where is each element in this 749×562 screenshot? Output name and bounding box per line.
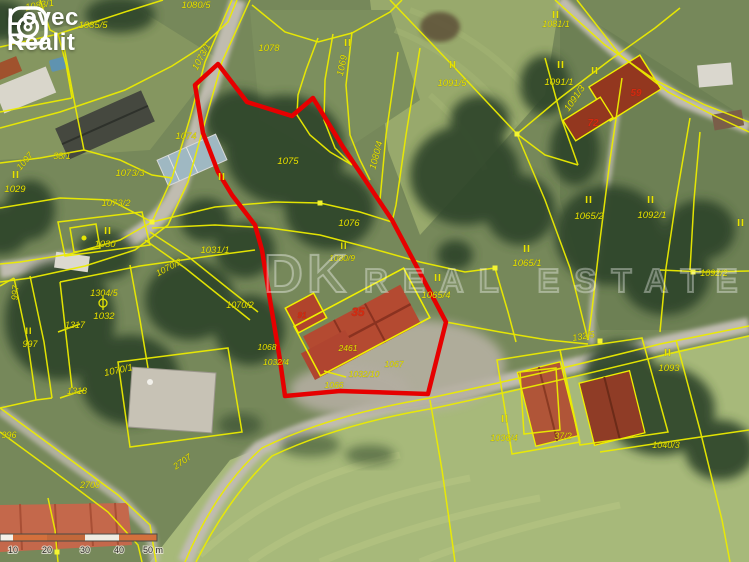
parcel-number-label: 997 [9, 284, 20, 301]
parcel-number-label: 1092/1 [637, 210, 666, 221]
parcel-number-label: 1065/1 [512, 258, 541, 269]
parcel-number-label: 1067 [385, 359, 404, 369]
parcel-number-label: 1068 [258, 342, 277, 352]
parcel-number-label: 1070/2 [226, 300, 254, 310]
parcel-number-label: 1066 [325, 380, 344, 390]
house-number-label: 91 [298, 311, 307, 320]
house-number-label: 35 [351, 305, 365, 319]
landuse-symbol-label: II [218, 171, 226, 183]
parcel-number-label: 1092/2 [700, 268, 728, 278]
parcel-number-label: 1093 [658, 363, 680, 374]
parcel-vertex-dot [318, 201, 323, 206]
parcel-number-label: 1073/2 [101, 198, 131, 209]
parcel-number-label: 37/2 [554, 431, 572, 441]
parcel-number-label: 1078 [258, 43, 280, 54]
landuse-symbol-label: II [523, 243, 531, 255]
parcel-number-label: 996 [1, 430, 16, 440]
parcel-number-label: 1080/5 [181, 0, 211, 11]
parcel-number-label: 1091/5 [437, 78, 467, 89]
landuse-symbol-label: II [104, 225, 112, 237]
brand-logo: Lovec Realit [7, 5, 79, 55]
landuse-symbol-label: II [557, 59, 565, 71]
parcel-number-label: 1032/4 [263, 357, 289, 367]
landuse-symbol-label: II [585, 194, 593, 206]
brand-logo-icon [7, 5, 49, 47]
parcel-number-label: 1065/4 [421, 290, 450, 301]
parcel-number-label: 1029 [4, 184, 26, 195]
parcel-vertex-dot [691, 270, 696, 275]
parcel-number-label: 38/1 [53, 151, 71, 161]
parcel-number-label: 1081/1 [542, 19, 570, 29]
scalebar-label: 10 [8, 545, 18, 555]
warehouse-building [128, 367, 216, 433]
parcel-number-label: 1040/3 [652, 440, 680, 450]
landuse-symbol-label: II [12, 169, 20, 181]
parcel-vertex-dot [55, 550, 60, 555]
parcel-number-label: 997 [22, 339, 38, 349]
parcel-number-label: 2708 [79, 480, 100, 490]
landuse-symbol-label: II [449, 59, 457, 71]
landuse-symbol-label: II [737, 217, 745, 229]
scalebar-label: 30 [80, 545, 90, 555]
parcel-number-label: 1065/2 [574, 211, 604, 222]
parcel-number-label: 1304/5 [90, 288, 119, 298]
landuse-symbol-label: II [591, 65, 599, 77]
parcel-number-label: 1036/4 [490, 433, 518, 443]
house-number-label: 59 [630, 88, 642, 99]
landuse-symbol-label: II [664, 347, 672, 359]
cadastral-map-svg[interactable]: 1083/11085/51080/51073/11078II10691080/4… [0, 0, 749, 562]
landuse-symbol-label: II [25, 326, 32, 336]
scalebar-label: 40 [114, 545, 124, 555]
parcel-vertex-dot [150, 220, 155, 225]
landuse-symbol-label: II [501, 413, 509, 425]
cadastral-map-view[interactable]: 1083/11085/51080/51073/11078II10691080/4… [0, 0, 749, 562]
parcel-vertex-dot [493, 266, 498, 271]
parcel-number-label: 1076 [338, 218, 360, 229]
scalebar-label: 20 [42, 545, 52, 555]
parcel-number-label: 1075 [277, 156, 299, 167]
parcel-number-label: 1085/5 [78, 20, 108, 31]
parcel-number-label: 1317 [65, 320, 86, 330]
parcel-number-label: 1080/9 [329, 253, 355, 263]
landuse-symbol-label: II [340, 241, 347, 251]
parcel-vertex-dot [515, 132, 520, 137]
parcel-number-label: 1032/10 [349, 369, 380, 379]
parcel-number-label: 1091/1 [544, 77, 573, 88]
parcel-number-label: 1030 [94, 239, 116, 250]
landuse-symbol-label: II [434, 272, 442, 284]
parcel-number-label: 2461 [338, 343, 358, 353]
house-number-label: 72 [587, 118, 599, 129]
parcel-number-label: 1031/1 [200, 245, 229, 256]
parcel-vertex-dot [598, 339, 603, 344]
parcel-number-label: 1318 [67, 386, 87, 396]
parcel-number-label: 1074 [175, 131, 196, 142]
parcel-number-label: 1032 [93, 311, 115, 322]
landuse-symbol-label: II [647, 194, 655, 206]
landuse-symbol-label: II [344, 37, 352, 49]
scalebar-label: 50 m [143, 545, 163, 555]
parcel-number-label: 1073/3 [115, 168, 145, 179]
